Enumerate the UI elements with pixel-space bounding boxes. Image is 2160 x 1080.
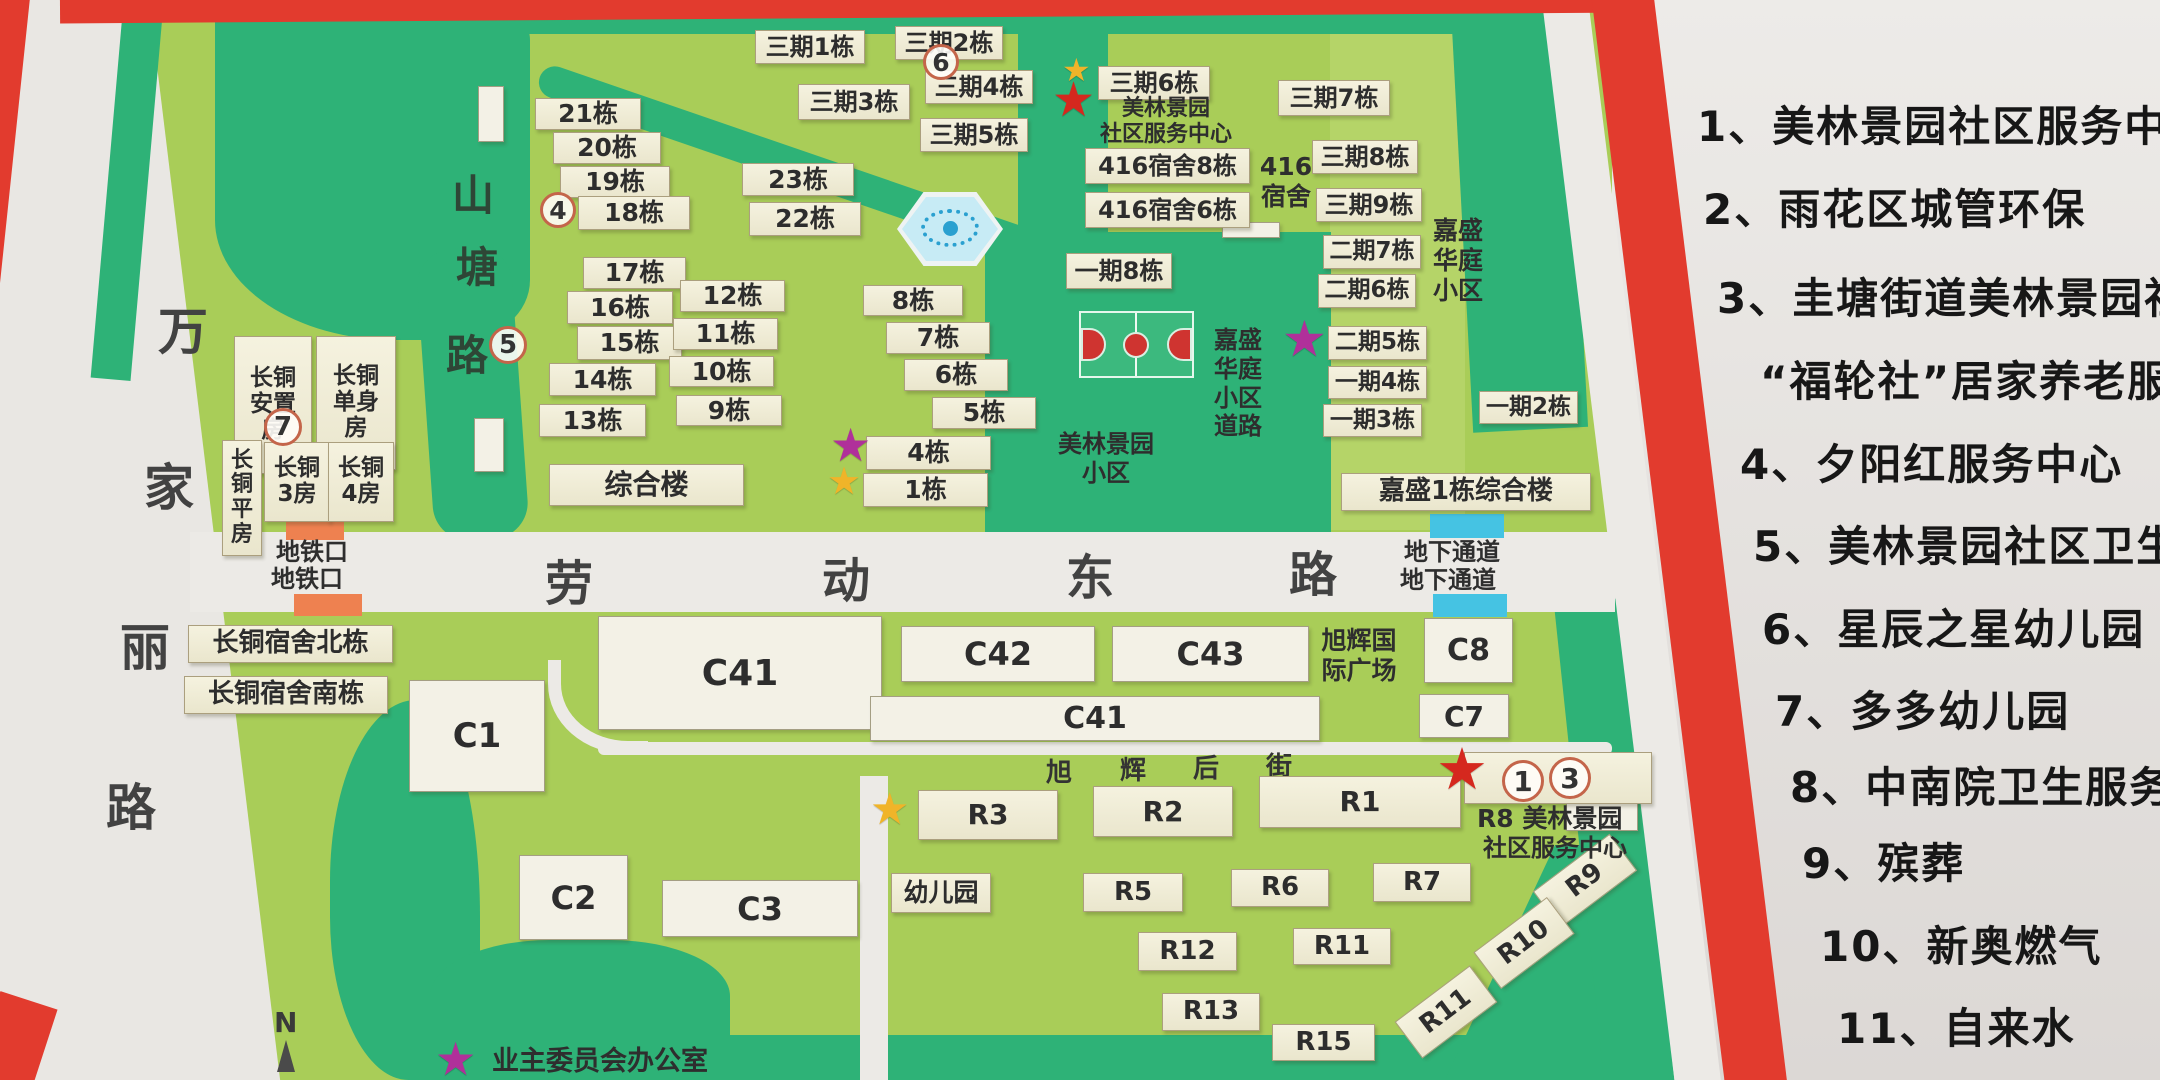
building-4: 4栋 bbox=[866, 436, 991, 470]
red-sliver-bottomleft bbox=[0, 991, 58, 1080]
building-17: 17栋 bbox=[583, 257, 686, 289]
red-stripe-top bbox=[60, 0, 1640, 24]
building-phase3-8: 三期8栋 bbox=[1312, 140, 1418, 174]
badge-1: 1 bbox=[1502, 760, 1544, 802]
road-label-laodong: 路 bbox=[1289, 535, 1337, 605]
building-c8: C8 bbox=[1424, 618, 1513, 683]
building-changtong-3fang: 长铜 3房 bbox=[264, 442, 330, 522]
building-c3: C3 bbox=[662, 880, 858, 937]
building-416-dorm-8: 416宿舍8栋 bbox=[1085, 148, 1250, 184]
green-sliver-left-edge bbox=[91, 0, 166, 381]
star-gold-r3: ★ bbox=[870, 788, 909, 832]
pond-fountain-center bbox=[943, 221, 958, 236]
metro-entrance-marker bbox=[294, 594, 362, 616]
badge-4: 4 bbox=[540, 192, 576, 228]
building-phase3-6: 三期6栋 bbox=[1098, 66, 1210, 100]
legend-item-5: 5、美林景园社区卫生服 bbox=[1753, 513, 2160, 574]
road-label-wanjiali: 路 bbox=[106, 768, 156, 840]
building-phase3-3: 三期3栋 bbox=[798, 84, 910, 120]
building-phase1-3: 一期3栋 bbox=[1323, 404, 1422, 437]
legend-item-7: 7、多多幼儿园 bbox=[1775, 678, 2070, 739]
building-21: 21栋 bbox=[535, 98, 641, 130]
star-purple-phase2-5: ★ bbox=[1282, 314, 1327, 364]
red-sliver-topleft bbox=[0, 0, 33, 291]
building-phase3-1: 三期1栋 bbox=[755, 30, 865, 64]
star-red-r8: ★ bbox=[1436, 740, 1488, 798]
building-phase1-2: 一期2栋 bbox=[1479, 391, 1578, 424]
green-band-top bbox=[505, 8, 1515, 34]
building-c41-bar: C41 bbox=[870, 696, 1320, 741]
legend-item-6: 6、星辰之星幼儿园 bbox=[1762, 596, 2145, 657]
building-6: 6栋 bbox=[904, 359, 1008, 391]
building-12: 12栋 bbox=[680, 280, 785, 312]
building-kindergarten: 幼儿园 bbox=[891, 873, 991, 913]
building-phase2-7: 二期7栋 bbox=[1323, 235, 1421, 269]
building-7: 7栋 bbox=[886, 322, 990, 354]
road-label-laodong: 东 bbox=[1066, 538, 1114, 608]
building-23: 23栋 bbox=[742, 163, 854, 196]
legend-item-11: 11、自来水 bbox=[1837, 995, 2075, 1056]
building-1: 1栋 bbox=[863, 473, 988, 507]
building-15: 15栋 bbox=[577, 326, 682, 360]
building-16: 16栋 bbox=[567, 291, 673, 324]
area-label-jiasheng-community: 嘉盛 华庭 小区 bbox=[1424, 216, 1492, 306]
road-label-wanjiali: 丽 bbox=[120, 608, 170, 680]
court-right-key bbox=[1167, 328, 1192, 361]
building-416-dorm-6: 416宿舍6栋 bbox=[1085, 192, 1250, 228]
building-r11-south: R11 bbox=[1395, 965, 1498, 1058]
legend-item-3: 3、圭塘街道美林景园社 bbox=[1717, 265, 2160, 326]
legend-item-10: 10、新奥燃气 bbox=[1820, 913, 2102, 974]
area-label-jiasheng-road: 嘉盛 华庭 小区 道路 bbox=[1210, 326, 1266, 441]
metro-entrance-label: 地铁口 bbox=[276, 538, 348, 567]
building-zonghelou: 综合楼 bbox=[549, 464, 744, 506]
badge-6: 6 bbox=[923, 44, 959, 80]
compass-arrow-icon bbox=[277, 1040, 295, 1072]
building-9: 9栋 bbox=[676, 395, 782, 426]
building-r7: R7 bbox=[1373, 863, 1471, 902]
road-label-shantang: 路 bbox=[446, 322, 488, 383]
building-c43: C43 bbox=[1112, 626, 1309, 682]
road-label-xuhui-backstreet: 后 bbox=[1193, 748, 1219, 785]
building-phase1-8: 一期8栋 bbox=[1066, 253, 1172, 289]
building-phase1-4: 一期4栋 bbox=[1328, 366, 1427, 399]
road-label-laodong: 动 bbox=[822, 541, 870, 611]
star-purple-owners-committee: ★ bbox=[435, 1036, 476, 1080]
road-label-shantang: 塘 bbox=[456, 234, 498, 295]
court-left-key bbox=[1081, 328, 1106, 361]
area-label-service-center: 美林景园 社区服务中心 bbox=[1086, 96, 1246, 149]
road-label-laodong: 劳 bbox=[545, 544, 593, 614]
building-20: 20栋 bbox=[553, 132, 661, 164]
road-label-shantang: 山 bbox=[452, 162, 494, 223]
road-label-wanjiali: 家 bbox=[144, 448, 194, 520]
label-r8-service-center-line1: R8 美林景园 bbox=[1477, 804, 1622, 834]
compass-n-label: N bbox=[274, 1006, 297, 1040]
building-r3: R3 bbox=[918, 790, 1058, 840]
legend-item-9: 9、殡葬 bbox=[1802, 830, 1965, 891]
underpass-marker bbox=[1430, 514, 1504, 538]
building-changtong-4fang: 长铜 4房 bbox=[328, 442, 394, 522]
building-r11: R11 bbox=[1293, 928, 1391, 965]
underpass-label: 地下通道 bbox=[1404, 538, 1500, 567]
building-r1: R1 bbox=[1259, 776, 1461, 828]
legend-item-3b: “福轮社”居家养老服 bbox=[1760, 348, 2160, 409]
building-22: 22栋 bbox=[749, 202, 861, 236]
building-5: 5栋 bbox=[932, 397, 1036, 429]
building-changtong-pingfang: 长 铜 平 房 bbox=[222, 440, 262, 556]
badge-3: 3 bbox=[1549, 757, 1591, 799]
metro-entrance-label: 地铁口 bbox=[271, 565, 343, 594]
area-label-416-dorm: 416 宿舍 bbox=[1255, 152, 1317, 212]
building-c42: C42 bbox=[901, 626, 1095, 682]
building-r2: R2 bbox=[1093, 786, 1233, 837]
building-changtong-dorm-north: 长铜宿舍北栋 bbox=[188, 625, 393, 663]
star-gold-building-1: ★ bbox=[827, 462, 861, 500]
building-phase3-9: 三期9栋 bbox=[1316, 188, 1422, 222]
building-r6: R6 bbox=[1231, 869, 1329, 907]
building-phase2-5: 二期5栋 bbox=[1328, 326, 1427, 360]
legend-item-8: 8、中南院卫生服务 bbox=[1790, 754, 2160, 815]
community-map-board: 地铁口 地铁口 地下通道 地下通道 万 家 丽 路 山 塘 路 劳 动 东 路 … bbox=[0, 0, 2160, 1080]
star-red-service-center: ★ bbox=[1052, 76, 1095, 124]
building-r5: R5 bbox=[1083, 873, 1183, 912]
underpass-label: 地下通道 bbox=[1400, 566, 1496, 595]
building-phase2-6: 二期6栋 bbox=[1318, 274, 1416, 308]
building-changtong-dorm-south: 长铜宿舍南栋 bbox=[184, 676, 388, 714]
area-label-meilin-community: 美林景园 小区 bbox=[1052, 430, 1160, 488]
small-building bbox=[474, 418, 504, 472]
building-c1: C1 bbox=[409, 680, 545, 792]
underpass-marker bbox=[1433, 594, 1507, 617]
badge-7: 7 bbox=[264, 408, 302, 446]
label-owners-committee: 业主委员会办公室 bbox=[492, 1046, 708, 1078]
building-14: 14栋 bbox=[549, 363, 656, 396]
area-label-xuhui-plaza: 旭辉国 际广场 bbox=[1316, 626, 1402, 686]
legend-item-2: 2、雨花区城管环保 bbox=[1703, 176, 2086, 237]
pond bbox=[897, 192, 1003, 266]
road-label-wanjiali: 万 bbox=[158, 292, 208, 364]
legend-item-4: 4、夕阳红服务中心 bbox=[1740, 431, 2123, 492]
building-r12: R12 bbox=[1138, 932, 1237, 971]
building-jiasheng-1: 嘉盛1栋综合楼 bbox=[1341, 473, 1591, 511]
building-18: 18栋 bbox=[578, 196, 690, 230]
road-label-xuhui-backstreet: 辉 bbox=[1120, 750, 1146, 787]
road-label-xuhui-backstreet: 旭 bbox=[1046, 752, 1072, 789]
building-11: 11栋 bbox=[673, 318, 778, 350]
building-r15: R15 bbox=[1272, 1024, 1375, 1061]
building-c7: C7 bbox=[1419, 694, 1509, 738]
building-phase3-7: 三期7栋 bbox=[1278, 80, 1390, 116]
building-8: 8栋 bbox=[863, 285, 963, 316]
building-phase3-5: 三期5栋 bbox=[920, 118, 1028, 152]
building-10: 10栋 bbox=[669, 356, 774, 387]
building-c41-main: C41 bbox=[598, 616, 882, 730]
court-center-circle bbox=[1123, 332, 1149, 358]
building-13: 13栋 bbox=[539, 404, 646, 437]
building-c2: C2 bbox=[519, 855, 628, 940]
building-19: 19栋 bbox=[560, 166, 670, 198]
building-r13: R13 bbox=[1162, 993, 1260, 1031]
legend-item-1: 1、美林景园社区服务中心 bbox=[1697, 93, 2160, 154]
badge-5: 5 bbox=[489, 326, 527, 364]
basketball-court bbox=[1079, 311, 1194, 378]
small-building bbox=[478, 86, 504, 142]
label-r8-service-center-line2: 社区服务中心 bbox=[1483, 834, 1627, 863]
